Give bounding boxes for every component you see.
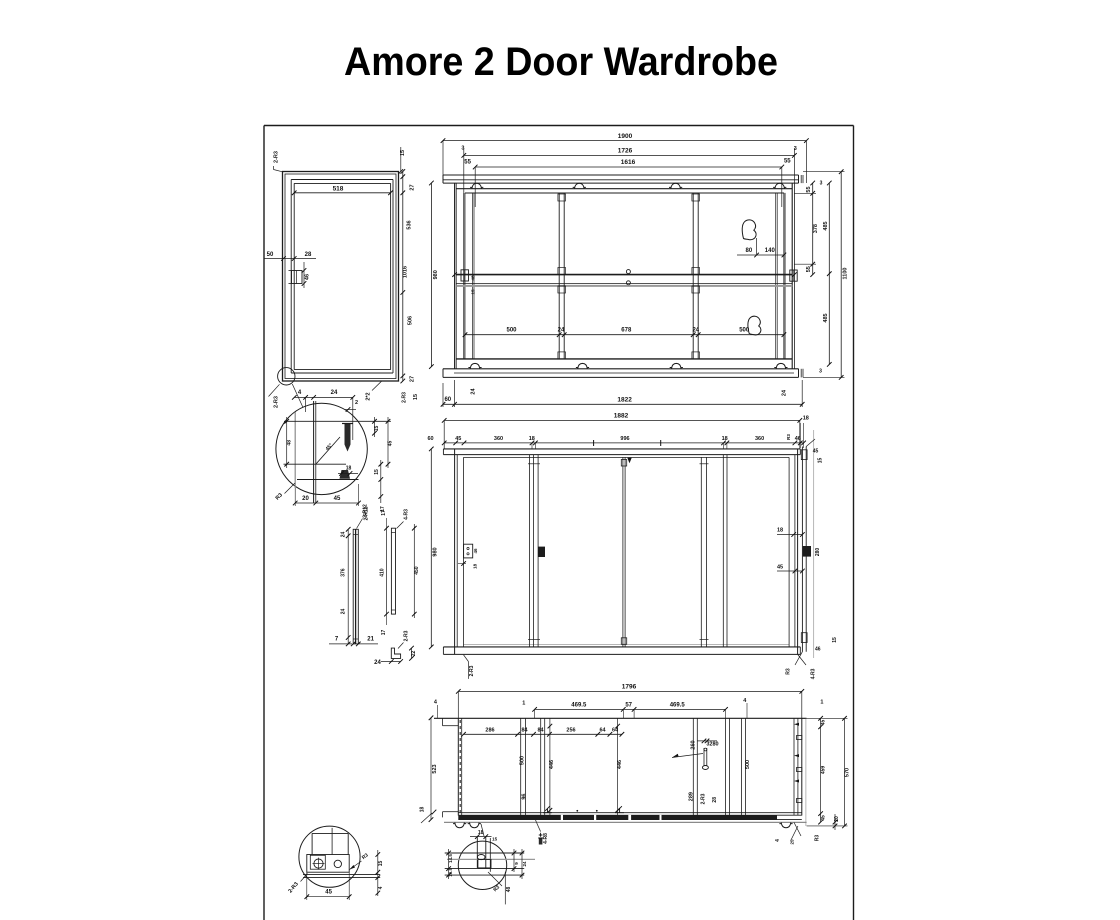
svg-text:260: 260 [691,740,697,749]
svg-text:28: 28 [712,797,718,803]
svg-text:2-R3: 2-R3 [274,151,280,163]
svg-text:45: 45 [388,441,394,447]
svg-text:280: 280 [815,548,821,557]
svg-text:20: 20 [302,496,309,502]
svg-text:17: 17 [381,510,387,516]
svg-text:1900: 1900 [618,133,633,140]
svg-text:18: 18 [346,466,352,472]
svg-text:18: 18 [420,807,426,813]
svg-text:17: 17 [381,630,387,636]
svg-text:286: 286 [485,728,494,734]
svg-text:28: 28 [305,252,312,258]
svg-text:996: 996 [620,436,629,442]
svg-text:Amore 2 Door Wardrobe: Amore 2 Door Wardrobe [344,40,778,84]
svg-text:22: 22 [411,651,417,657]
svg-text:24: 24 [374,660,381,666]
svg-text:2-R3: 2-R3 [402,392,408,403]
svg-text:376: 376 [341,568,347,577]
svg-text:3: 3 [820,181,823,187]
svg-text:410: 410 [380,568,386,577]
svg-text:18: 18 [803,416,809,422]
svg-text:1: 1 [522,701,525,707]
svg-text:485: 485 [823,313,829,322]
svg-text:15: 15 [471,289,476,295]
svg-text:506: 506 [408,316,414,325]
svg-text:1796: 1796 [622,684,637,691]
svg-text:60: 60 [444,397,451,403]
svg-text:45: 45 [777,565,783,571]
svg-text:1016: 1016 [403,266,409,278]
svg-text:21: 21 [367,637,374,643]
svg-text:4-R3: 4-R3 [811,668,817,679]
svg-text:678: 678 [621,328,632,334]
svg-text:4: 4 [775,839,781,842]
svg-text:18: 18 [722,436,728,442]
svg-text:2-R3: 2-R3 [403,630,409,641]
svg-text:16.5: 16.5 [448,867,453,876]
svg-text:R3: R3 [786,668,792,675]
svg-text:2-R3: 2-R3 [274,396,280,408]
svg-text:15: 15 [492,837,498,842]
svg-text:3: 3 [819,369,822,375]
svg-text:485: 485 [823,221,829,230]
svg-text:469.5: 469.5 [571,703,587,709]
svg-text:1616: 1616 [621,159,636,166]
svg-text:45: 45 [813,449,819,455]
svg-text:55: 55 [806,186,812,192]
svg-text:469.5: 469.5 [670,703,686,709]
svg-text:48: 48 [471,275,476,281]
svg-text:523: 523 [432,764,438,773]
svg-text:27: 27 [410,184,416,190]
svg-text:446: 446 [617,760,623,769]
svg-text:45: 45 [334,496,341,502]
svg-text:980: 980 [433,547,439,556]
svg-text:500: 500 [739,328,750,334]
svg-text:57: 57 [625,703,632,709]
svg-text:140: 140 [765,248,776,254]
svg-text:15: 15 [832,637,838,643]
svg-text:46: 46 [305,274,311,280]
svg-text:24: 24 [558,328,565,334]
svg-text:25: 25 [790,839,795,845]
svg-text:4: 4 [378,886,384,889]
svg-text:3280: 3280 [706,742,718,748]
svg-text:1882: 1882 [614,413,629,420]
svg-text:980: 980 [433,270,439,279]
svg-text:27: 27 [410,376,416,382]
svg-text:55: 55 [806,266,812,272]
svg-text:500: 500 [506,328,517,334]
svg-text:45: 45 [455,436,461,442]
svg-text:2-R3: 2-R3 [701,793,707,804]
svg-text:24: 24 [522,861,527,867]
svg-text:18: 18 [529,436,535,442]
svg-text:45: 45 [325,890,332,896]
svg-text:96: 96 [521,794,527,800]
svg-text:15: 15 [413,394,419,400]
svg-text:46: 46 [815,647,821,653]
svg-text:1726: 1726 [618,148,633,155]
svg-text:500: 500 [745,760,751,769]
svg-text:15: 15 [400,150,406,156]
svg-text:536: 536 [407,220,413,229]
svg-text:378: 378 [813,224,819,233]
svg-text:1822: 1822 [617,397,632,404]
svg-text:24: 24 [471,388,477,395]
svg-text:45: 45 [820,720,826,726]
svg-text:3: 3 [794,146,797,152]
svg-text:45: 45 [820,815,826,821]
svg-text:446: 446 [549,760,555,769]
svg-text:46: 46 [473,548,478,554]
svg-text:289: 289 [688,792,694,801]
svg-text:2-R12: 2-R12 [363,504,369,518]
svg-text:4-R8: 4-R8 [543,833,549,844]
svg-text:48: 48 [506,887,512,893]
svg-text:55: 55 [464,160,471,166]
svg-text:3: 3 [461,146,464,152]
svg-text:2-R3: 2-R3 [469,665,475,676]
svg-text:1: 1 [820,700,823,706]
svg-text:60: 60 [427,436,433,442]
svg-text:2: 2 [355,400,358,406]
svg-text:15: 15 [374,426,380,432]
svg-text:1100: 1100 [842,268,848,280]
svg-text:518: 518 [333,186,344,193]
svg-text:R3: R3 [786,434,791,440]
svg-text:459: 459 [820,766,826,775]
svg-text:570: 570 [844,768,850,777]
svg-text:20: 20 [834,816,840,822]
svg-text:15: 15 [374,469,380,475]
svg-text:256: 256 [566,728,575,734]
svg-text:48: 48 [287,440,293,446]
svg-text:R3: R3 [814,835,820,842]
svg-text:55: 55 [784,159,791,165]
svg-text:46: 46 [795,436,801,442]
svg-text:360: 360 [755,436,764,442]
svg-text:15: 15 [378,861,384,867]
svg-text:18: 18 [473,563,478,569]
svg-text:360: 360 [494,436,503,442]
svg-text:84: 84 [521,728,528,734]
svg-text:24: 24 [692,328,699,334]
svg-text:14.5: 14.5 [448,854,453,863]
svg-text:64: 64 [599,728,606,734]
svg-text:4-R3: 4-R3 [404,509,410,520]
svg-text:24: 24 [331,390,338,396]
svg-text:15: 15 [817,458,823,464]
svg-text:80: 80 [746,248,753,254]
svg-text:24: 24 [341,609,347,615]
svg-text:2*2: 2*2 [366,392,372,400]
svg-text:50: 50 [267,252,274,258]
svg-text:18: 18 [777,528,783,534]
svg-text:24: 24 [341,532,347,538]
svg-text:450: 450 [414,566,420,575]
svg-text:24: 24 [782,389,788,396]
svg-text:500: 500 [519,756,525,765]
